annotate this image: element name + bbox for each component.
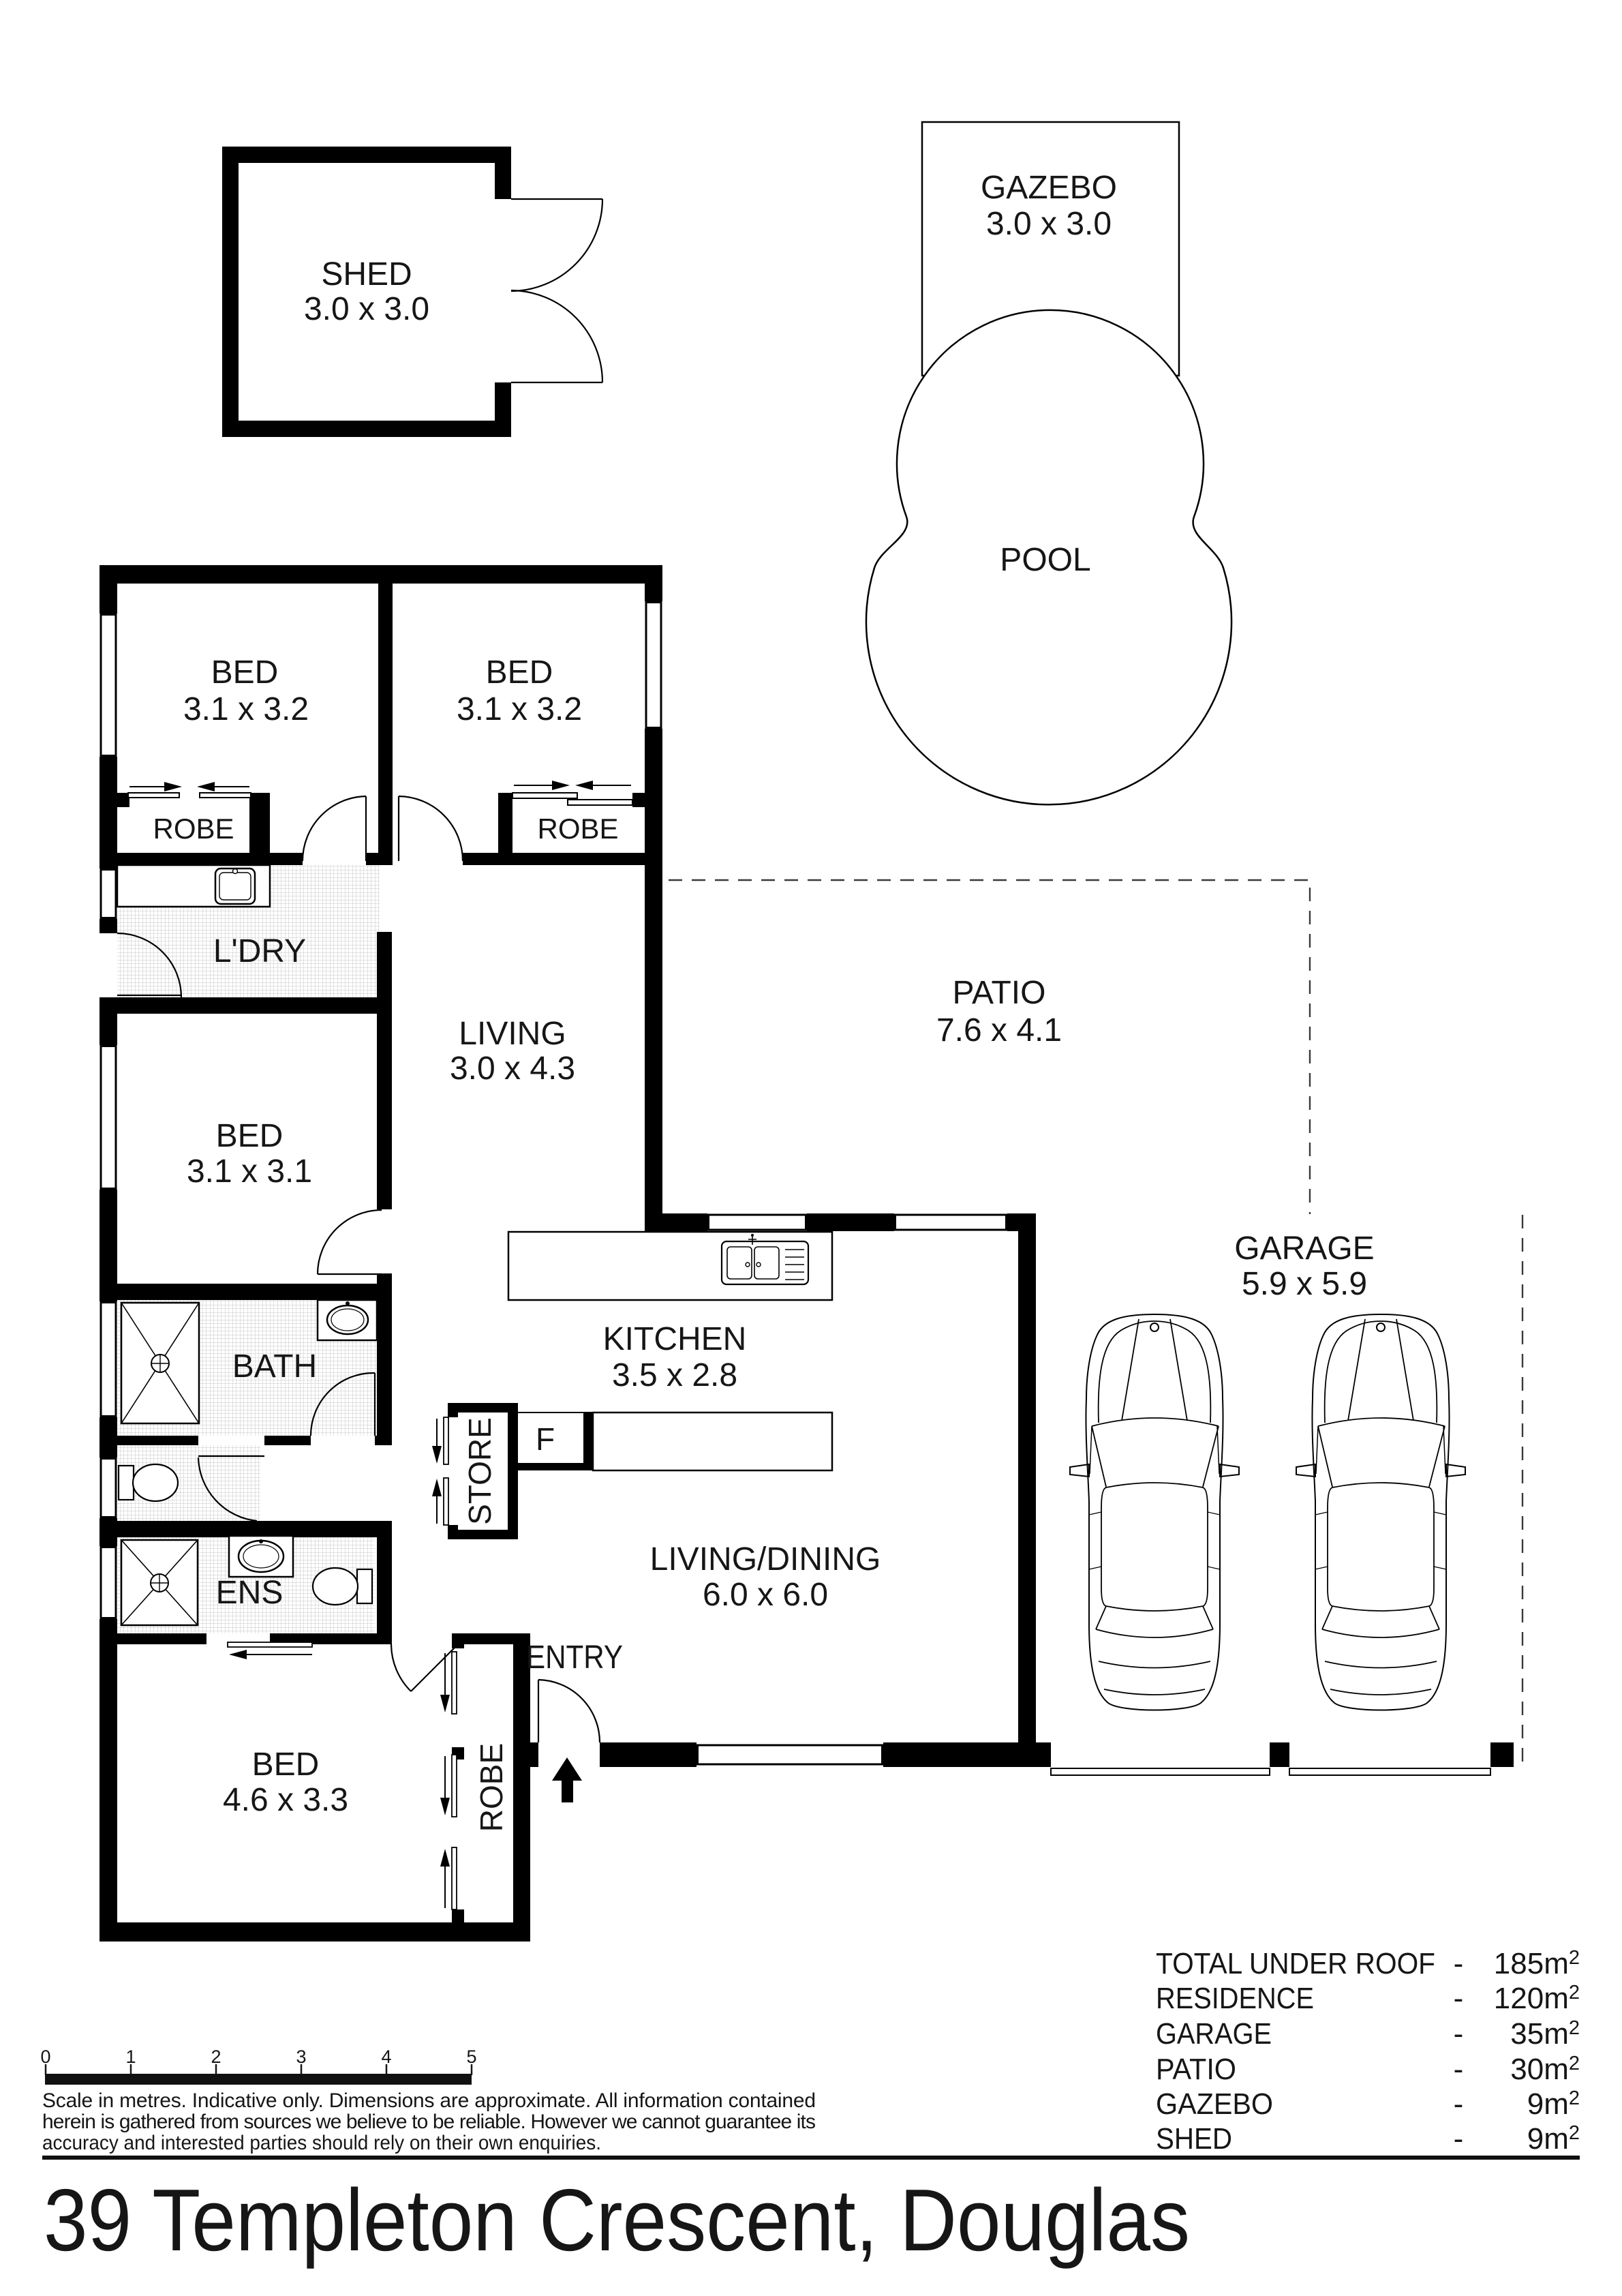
svg-text:-: - [1454, 2053, 1464, 2086]
svg-text:PATIO: PATIO [953, 975, 1046, 1011]
svg-text:Scale in metres. Indicative on: Scale in metres. Indicative only. Dimens… [42, 2089, 816, 2112]
svg-text:3: 3 [296, 2046, 306, 2067]
svg-text:5: 5 [466, 2046, 476, 2067]
svg-text:BED: BED [252, 1747, 320, 1783]
svg-text:120m2: 120m2 [1494, 1982, 1580, 2015]
svg-text:POOL: POOL [1000, 542, 1090, 578]
svg-text:ROBE: ROBE [474, 1743, 509, 1832]
svg-text:SHED: SHED [1156, 2122, 1232, 2156]
svg-text:BATH: BATH [232, 1348, 317, 1385]
svg-text:3.0 x 4.3: 3.0 x 4.3 [450, 1051, 575, 1087]
svg-text:4.6 x 3.3: 4.6 x 3.3 [223, 1782, 348, 1818]
svg-text:ROBE: ROBE [537, 813, 618, 845]
svg-text:2: 2 [211, 2046, 221, 2067]
svg-text:185m2: 185m2 [1494, 1947, 1580, 1980]
svg-text:BED: BED [486, 654, 553, 691]
svg-text:-: - [1454, 1947, 1464, 1980]
svg-text:-: - [1454, 1982, 1464, 2015]
svg-text:ENS: ENS [216, 1575, 284, 1611]
svg-text:6.0 x 6.0: 6.0 x 6.0 [703, 1577, 828, 1613]
svg-text:3.5 x 2.8: 3.5 x 2.8 [612, 1357, 737, 1393]
svg-text:1: 1 [125, 2046, 136, 2067]
svg-text:PATIO: PATIO [1156, 2053, 1236, 2086]
svg-text:SHED: SHED [321, 256, 412, 292]
svg-text:4: 4 [381, 2046, 391, 2067]
svg-text:3.1 x 3.2: 3.1 x 3.2 [183, 691, 309, 727]
svg-text:F: F [536, 1421, 555, 1457]
svg-text:ROBE: ROBE [153, 813, 234, 845]
svg-text:3.0 x 3.0: 3.0 x 3.0 [304, 291, 429, 327]
svg-text:herein is gathered from source: herein is gathered from sources we belie… [42, 2111, 816, 2133]
svg-text:0: 0 [40, 2046, 50, 2067]
svg-text:KITCHEN: KITCHEN [603, 1321, 747, 1357]
svg-text:-: - [1454, 2087, 1464, 2121]
svg-text:GARAGE: GARAGE [1156, 2017, 1272, 2051]
svg-text:GAZEBO: GAZEBO [981, 170, 1117, 206]
svg-text:3.1 x 3.2: 3.1 x 3.2 [457, 691, 582, 727]
svg-text:L'DRY: L'DRY [213, 933, 306, 969]
svg-text:ENTRY: ENTRY [526, 1640, 623, 1676]
svg-text:LIVING/DINING: LIVING/DINING [650, 1541, 881, 1577]
svg-text:STORE: STORE [462, 1417, 498, 1525]
svg-text:TOTAL UNDER ROOF: TOTAL UNDER ROOF [1156, 1947, 1435, 1980]
svg-text:3.1 x 3.1: 3.1 x 3.1 [187, 1153, 312, 1190]
svg-text:GAZEBO: GAZEBO [1156, 2087, 1273, 2121]
svg-text:GARAGE: GARAGE [1234, 1230, 1374, 1267]
svg-text:LIVING: LIVING [459, 1016, 566, 1052]
svg-text:-: - [1454, 2017, 1464, 2051]
svg-text:39 Templeton Crescent, Douglas: 39 Templeton Crescent, Douglas [44, 2171, 1190, 2269]
svg-text:5.9 x 5.9: 5.9 x 5.9 [1242, 1266, 1367, 1302]
svg-text:3.0 x 3.0: 3.0 x 3.0 [986, 206, 1112, 242]
svg-text:7.6 x 4.1: 7.6 x 4.1 [936, 1012, 1062, 1048]
svg-text:accuracy and interested partie: accuracy and interested parties should r… [42, 2132, 601, 2154]
svg-text:BED: BED [211, 654, 279, 691]
svg-text:RESIDENCE: RESIDENCE [1156, 1982, 1314, 2015]
svg-text:-: - [1454, 2122, 1464, 2156]
svg-text:BED: BED [216, 1118, 284, 1154]
